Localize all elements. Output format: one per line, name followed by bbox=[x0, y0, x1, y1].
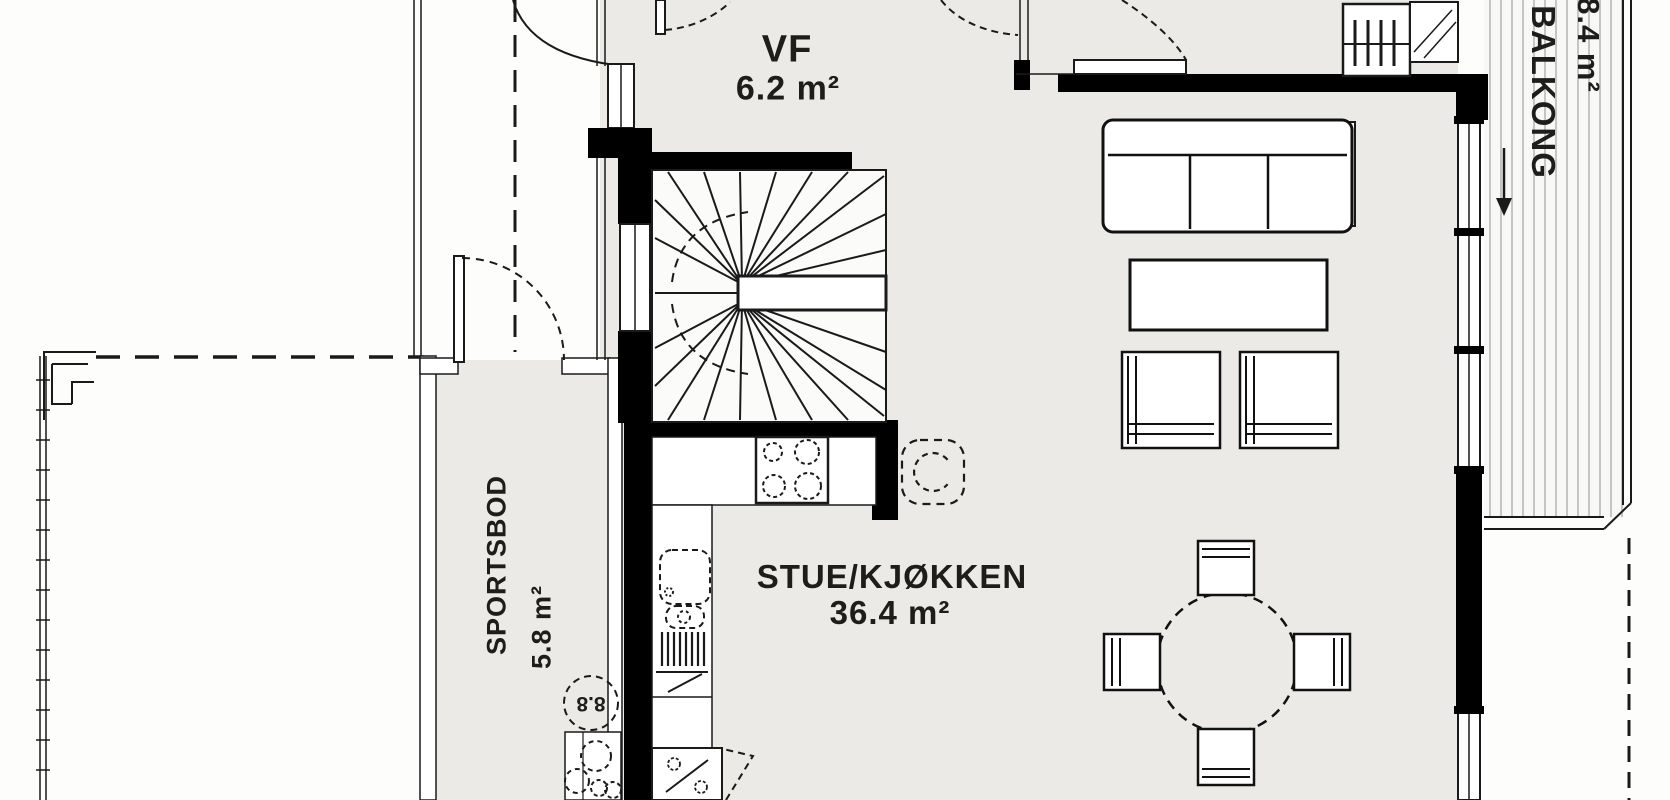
porch bbox=[414, 0, 624, 356]
wall-stair-left-lower bbox=[618, 331, 652, 423]
wall-jamb-vf-stue bbox=[1014, 60, 1030, 90]
window-1 bbox=[1458, 120, 1480, 232]
floor-plan: VF 6.2 m² STUE/KJØKKEN 36.4 m² SPORTSBOD… bbox=[0, 0, 1670, 800]
dining-chair bbox=[1198, 729, 1254, 785]
wall-right-top bbox=[1456, 74, 1488, 120]
site-edge-left bbox=[36, 356, 50, 800]
sportsbod-door-leaf bbox=[454, 256, 464, 362]
window-junction-tick bbox=[1454, 706, 1484, 714]
dining-chair bbox=[1294, 634, 1350, 690]
window-junction-tick bbox=[1454, 466, 1484, 474]
coffee-table bbox=[1130, 260, 1327, 330]
ceiling-height-label: 8.8 bbox=[576, 691, 605, 715]
sportsbod-wall-top-right bbox=[562, 358, 610, 374]
sportsbod-wall-left bbox=[420, 356, 436, 800]
sofa bbox=[1103, 120, 1352, 232]
vf-label: VF bbox=[762, 29, 813, 72]
stair-handrail bbox=[738, 276, 886, 310]
window-2 bbox=[1458, 232, 1480, 350]
sportsbod-door-arc bbox=[462, 258, 564, 360]
stue-kjokken-area: 36.4 m² bbox=[830, 594, 951, 632]
wall-stair-left-upper bbox=[618, 128, 652, 224]
window-4 bbox=[1458, 712, 1480, 800]
roof-overhang-lines bbox=[96, 0, 515, 357]
stair-window bbox=[620, 224, 650, 331]
wall-right-mid bbox=[1456, 470, 1482, 712]
sportsbod-door bbox=[454, 256, 564, 362]
wall-kitchen-left bbox=[624, 420, 652, 800]
window-junction-tick bbox=[1454, 346, 1484, 354]
water-heater-icon bbox=[565, 732, 621, 800]
sportsbod-wall-top-left bbox=[420, 358, 458, 374]
balkong-area: 8.4 m² bbox=[1570, 0, 1606, 93]
vf-window bbox=[608, 64, 634, 128]
sliding-door bbox=[1074, 60, 1186, 74]
armchair bbox=[1240, 352, 1338, 448]
floor-plan-drawing bbox=[0, 0, 1670, 800]
corner-detail bbox=[44, 352, 96, 420]
balkong-label: BALKONG bbox=[1524, 5, 1562, 179]
stair bbox=[652, 170, 886, 422]
dining-chair bbox=[1104, 634, 1160, 690]
entry-door-leaf bbox=[656, 0, 665, 34]
window-junction-tick bbox=[1454, 116, 1484, 124]
vf-area: 6.2 m² bbox=[736, 70, 840, 109]
armchair bbox=[1122, 352, 1220, 448]
wall-corner-vf bbox=[588, 128, 622, 158]
stove-icon bbox=[756, 437, 828, 503]
stue-kjokken-label: STUE/KJØKKEN bbox=[757, 558, 1028, 596]
sportsbod-area: 5.8 m² bbox=[527, 585, 558, 669]
window-junction-tick bbox=[1454, 228, 1484, 236]
sportsbod-label: SPORTSBOD bbox=[482, 475, 513, 655]
window-3 bbox=[1458, 350, 1480, 470]
dining-chair bbox=[1198, 541, 1254, 595]
